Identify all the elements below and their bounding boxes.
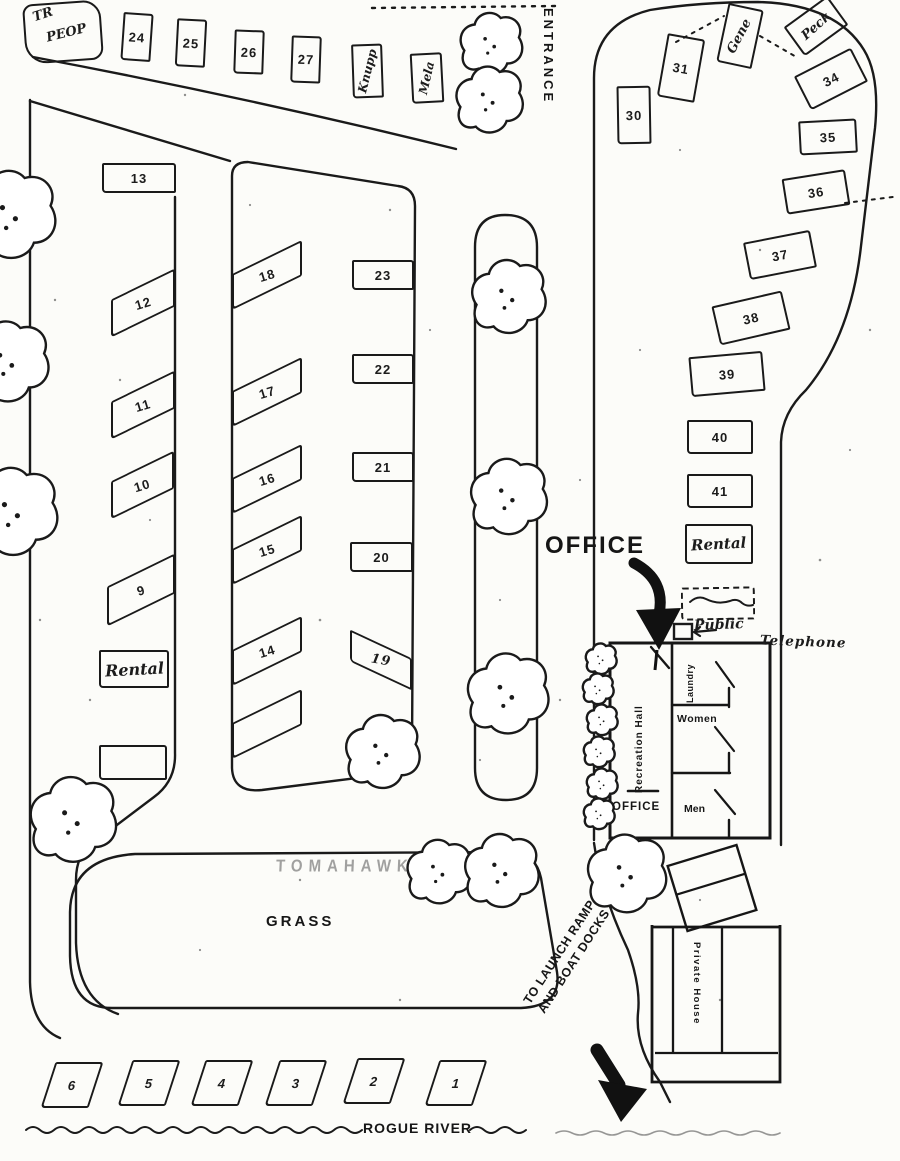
site-box-27: 27 xyxy=(290,35,322,83)
rental-box-right: Rental xyxy=(685,524,753,564)
site-label: 1 xyxy=(451,1076,460,1091)
laundry-label: Laundry xyxy=(685,664,695,703)
office-arrow-icon xyxy=(634,563,681,670)
site-box-41: 41 xyxy=(687,474,753,508)
shed-outline xyxy=(668,845,757,931)
top-dotted-boundary xyxy=(372,6,556,8)
site-box-23: 23 xyxy=(352,260,414,290)
site-box-26: 26 xyxy=(233,29,265,74)
tree-icon xyxy=(408,840,472,904)
office-big-label: OFFICE xyxy=(545,532,645,560)
tree-icon xyxy=(0,468,57,555)
tree-icon xyxy=(465,834,538,907)
telephone-label: Telephone xyxy=(760,632,847,651)
office-small-label: OFFICE xyxy=(612,801,660,813)
tree-icon xyxy=(461,13,523,74)
site-label: 11 xyxy=(133,396,152,415)
women-label: Women xyxy=(677,713,717,725)
site-label: 38 xyxy=(741,309,760,327)
tree-icon xyxy=(0,171,55,258)
site-label: 15 xyxy=(257,540,277,559)
camper-name: Gene xyxy=(725,16,756,56)
site-label: 30 xyxy=(626,107,643,122)
site-label: 20 xyxy=(373,550,389,565)
site-label: 16 xyxy=(257,469,277,488)
site-label: 13 xyxy=(131,171,147,186)
site-label: 2 xyxy=(369,1074,378,1089)
launch-arrow-icon xyxy=(597,1050,647,1122)
site-label: 9 xyxy=(135,582,147,599)
rogue-river-label: ROGUE RIVER xyxy=(363,1120,472,1136)
site-box-21: 21 xyxy=(352,452,414,482)
site-label: 14 xyxy=(257,641,277,660)
site-label: 27 xyxy=(298,52,315,68)
camper-site-mela: Mela xyxy=(410,52,445,104)
site-label: 17 xyxy=(257,382,277,401)
camper-site-knupp: Knupp xyxy=(351,43,384,98)
site-box-25: 25 xyxy=(175,18,207,68)
scribbled-dashed-box xyxy=(681,586,756,620)
campground-map: TR PEOP 24 25 26 27 Knupp Mela Gene Peck… xyxy=(0,0,900,1161)
site-label: 40 xyxy=(712,430,728,445)
recreation-hall-label: Recreation Hall xyxy=(634,705,645,793)
tree-icon xyxy=(471,459,547,534)
site-box-20: 20 xyxy=(350,542,413,572)
camper-name: Knupp xyxy=(355,48,379,95)
rental-label: Rental xyxy=(691,534,747,555)
men-label: Men xyxy=(684,803,705,815)
grass-label: GRASS xyxy=(266,913,334,930)
private-house-label: Private House xyxy=(691,942,702,1025)
site-label: 12 xyxy=(133,293,153,312)
site-box-39: 39 xyxy=(688,351,765,397)
site-label: 22 xyxy=(375,362,391,377)
site-label: 36 xyxy=(807,183,826,200)
site-label: 3 xyxy=(291,1076,300,1091)
site-label: 24 xyxy=(128,29,145,45)
site-box-22: 22 xyxy=(352,354,414,384)
camper-name: Peck xyxy=(798,9,834,43)
site-label: 37 xyxy=(770,246,789,264)
site-box-24: 24 xyxy=(120,12,153,62)
camper-note-line2: PEOP xyxy=(45,21,88,45)
bush-icon xyxy=(586,643,617,674)
tree-icon xyxy=(346,715,419,788)
site-label: 21 xyxy=(375,460,391,475)
site-box-40: 40 xyxy=(687,420,753,454)
site-label: 18 xyxy=(257,265,277,284)
site-label: 10 xyxy=(132,475,152,494)
site-label: 26 xyxy=(241,44,258,60)
entrance-label: ENTRANCE xyxy=(541,8,556,104)
rental-label: Rental xyxy=(104,658,164,680)
site-label: 31 xyxy=(672,59,691,77)
faded-area-text: TOMAHAWK xyxy=(276,857,415,877)
site-label: 19 xyxy=(370,651,392,669)
site-label: 23 xyxy=(375,268,391,283)
site-label: 5 xyxy=(144,1076,153,1091)
site-box-30: 30 xyxy=(616,86,651,145)
bush-icon xyxy=(587,704,618,735)
site-label: 25 xyxy=(182,35,199,51)
site-label: 41 xyxy=(712,484,728,499)
camper-name: Mela xyxy=(416,60,437,96)
camper-note-line1: TR xyxy=(31,5,55,26)
tree-icon xyxy=(31,777,116,862)
site-label: 39 xyxy=(718,366,736,382)
tree-icon xyxy=(456,67,522,133)
rental-box-left: Rental xyxy=(99,650,169,688)
camper-note-box: TR PEOP xyxy=(22,0,104,65)
site-label: 6 xyxy=(67,1078,76,1093)
bush-icon xyxy=(587,768,618,799)
dashed-guide-3 xyxy=(845,197,893,203)
entrance-road-lower-line xyxy=(30,101,230,161)
tree-icon xyxy=(472,260,545,333)
site-label: 4 xyxy=(217,1076,226,1091)
tree-icon xyxy=(0,321,49,401)
site-label: 34 xyxy=(820,69,841,90)
private-house-outline xyxy=(652,925,780,1082)
site-box-13: 13 xyxy=(102,163,176,193)
site-label: 35 xyxy=(819,129,836,145)
public-label: Public xyxy=(694,616,744,634)
site-box-35: 35 xyxy=(798,119,858,156)
unlabeled-site-box xyxy=(99,745,167,780)
